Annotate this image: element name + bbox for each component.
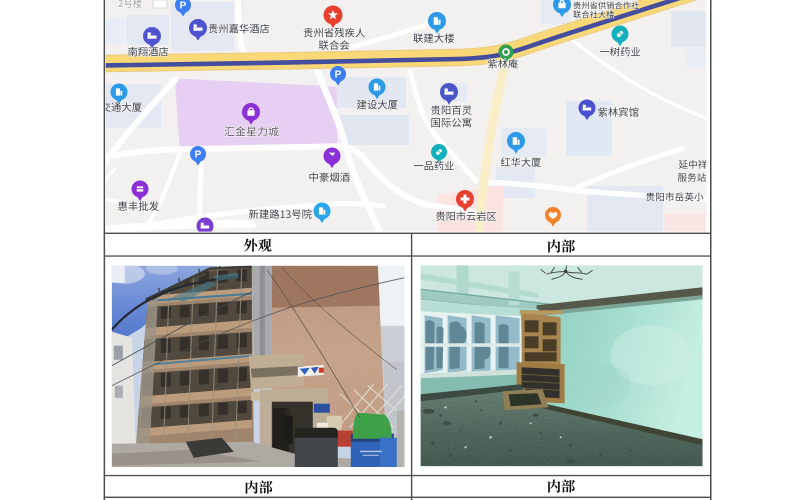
svg-text:P: P [180, 0, 187, 11]
svg-text:P: P [195, 149, 202, 160]
svg-text:P: P [335, 69, 342, 80]
